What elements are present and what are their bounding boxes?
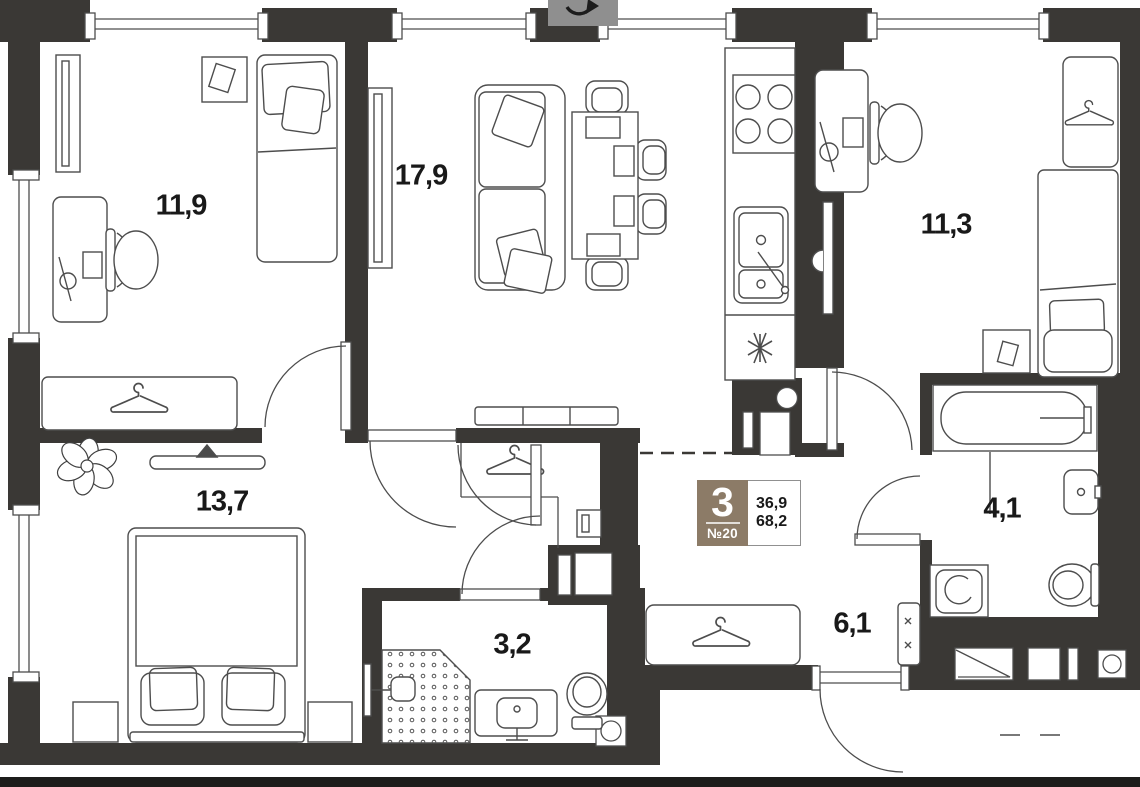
cabinet-icon: [577, 510, 601, 537]
side-table-icon: [202, 57, 247, 102]
building-core-symbols: [955, 648, 1126, 680]
floor-plan-page: 11,9 17,9 11,3 13,7 3,2 6,1 4,1 3 №20 36…: [0, 0, 1140, 787]
single-bed-icon: [1038, 170, 1118, 377]
sofa-icon: [475, 85, 565, 294]
tv-cabinet-icon: [368, 88, 392, 268]
room-area-label-bedroom-bottom-left: 13,7: [196, 486, 248, 519]
toilet-icon: [567, 673, 607, 729]
bedroom-bottom-left-furniture: [54, 436, 352, 742]
kitchen-sink-icon: [734, 207, 789, 303]
door-bathroom: [855, 476, 920, 545]
room-area-label-bathroom: 4,1: [983, 493, 1020, 526]
kitchen-furniture: [725, 48, 795, 380]
hallway-furniture: [646, 603, 920, 665]
toilet-icon: [1049, 564, 1099, 606]
shower-room-furniture: [364, 650, 607, 743]
door-shower-room: [460, 516, 540, 600]
room-area-label-bedroom-top-right: 11,3: [921, 209, 972, 242]
stove-icon: [733, 75, 795, 153]
room-area-label-living-room: 17,9: [395, 160, 447, 193]
bedroom-top-left-furniture: [42, 55, 337, 430]
electrical-panel-icon: [898, 603, 920, 665]
unit-badge-rooms-section: 3 №20: [697, 480, 748, 546]
closet-niche: [487, 446, 601, 538]
washing-machine-icon: [930, 565, 988, 617]
desk-icon: [815, 70, 868, 192]
door-bedroom-top-left: [265, 342, 351, 430]
wardrobe-icon: [646, 605, 800, 665]
unit-number: №20: [707, 526, 738, 541]
rooms-count: 3: [711, 485, 734, 520]
bathtub-icon: [933, 385, 1097, 451]
bottom-separator-bar: [0, 777, 1140, 787]
door-bedroom-bottom-left: [368, 430, 456, 527]
washbasin-icon: [1064, 470, 1101, 514]
nightstand-icon: [73, 702, 118, 742]
total-area-value: 68,2: [756, 513, 800, 531]
console-table-icon: [475, 407, 618, 425]
washbasin-icon: [475, 690, 557, 740]
nightstand-icon: [308, 702, 352, 742]
office-chair-icon: [870, 102, 922, 164]
door-bedroom-top-right: [827, 368, 912, 450]
tv-icon: [150, 445, 265, 469]
wardrobe-icon: [1063, 57, 1118, 167]
double-bed-icon: [128, 528, 305, 742]
unit-badge-areas-section: 36,9 68,2: [748, 480, 801, 546]
badge-divider: [706, 522, 740, 524]
door-closet: [458, 445, 541, 525]
single-bed-icon: [257, 55, 337, 262]
desk-icon: [53, 197, 107, 322]
plant-icon: [54, 436, 119, 496]
entrance-door: [812, 666, 909, 772]
wardrobe-icon: [42, 377, 237, 430]
living-room-furniture: [368, 81, 666, 425]
dining-table-icon: [572, 81, 666, 290]
room-area-label-hallway: 6,1: [833, 608, 870, 641]
room-area-label-bedroom-top-left: 11,9: [156, 190, 207, 223]
floor-plan-drawing: [0, 0, 1140, 787]
unit-info-badge: 3 №20 36,9 68,2: [697, 480, 801, 546]
compass-rotation-icon: [548, 0, 618, 26]
office-chair-icon: [106, 229, 158, 291]
shelf-icon: [56, 55, 80, 172]
side-table-icon: [983, 330, 1030, 373]
room-area-label-shower-room: 3,2: [493, 629, 530, 662]
living-area-value: 36,9: [756, 495, 800, 513]
